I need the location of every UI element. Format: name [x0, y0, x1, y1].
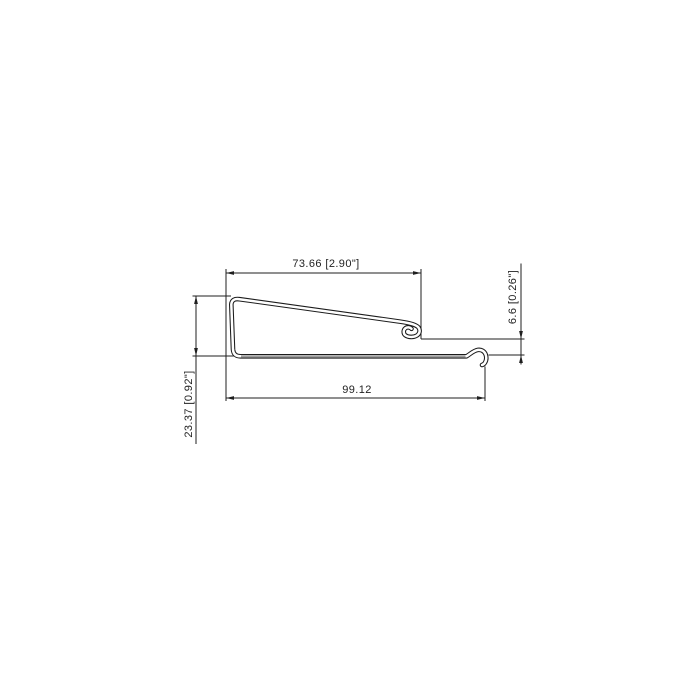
technical-drawing: 73.66 [2.90"] 99.12 6.6 [0.26"] 23.37 [0… — [0, 0, 700, 700]
arrowhead — [194, 296, 198, 304]
dimension-top-label: 73.66 [2.90"] — [292, 258, 359, 270]
arrowhead — [519, 331, 523, 339]
arrowhead — [413, 271, 421, 275]
arrowheads — [194, 271, 523, 400]
dimension-bottom-label: 99.12 — [342, 384, 372, 396]
arrowhead — [519, 355, 523, 363]
dimension-left-label: 23.37 [0.92"] — [183, 370, 195, 437]
drawing-canvas: 73.66 [2.90"] 99.12 6.6 [0.26"] 23.37 [0… — [0, 0, 700, 700]
profile-inner — [231, 299, 486, 365]
arrowhead — [226, 396, 234, 400]
arrowhead — [226, 271, 234, 275]
arrowhead — [194, 348, 198, 356]
profile — [231, 299, 486, 365]
dimension-lines — [193, 264, 525, 445]
dimension-right-label: 6.6 [0.26"] — [507, 270, 519, 324]
arrowhead — [477, 396, 485, 400]
